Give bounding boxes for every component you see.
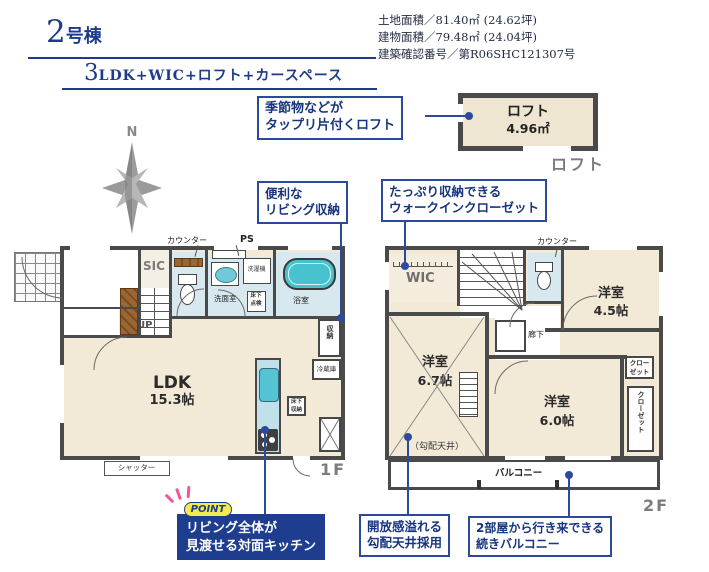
f1-sink-icon: [215, 267, 237, 283]
callout-living-line2: リビング収納: [265, 202, 340, 218]
window: [385, 262, 389, 290]
f2-room67-area: 6.7帖: [403, 374, 467, 388]
connector-kitchen: [264, 430, 266, 515]
f2-room60-label: 洋室: [527, 396, 587, 411]
f1-fridge-label: 冷蔵庫: [314, 366, 339, 373]
f1-washroom-label: 洗面室: [214, 295, 237, 304]
loft-room: ロフト 4.96㎡: [458, 93, 598, 151]
f2-hall-label: 廊下: [528, 330, 544, 339]
connector-ceiling: [407, 440, 409, 515]
floorplan-flyer: 2号棟 3LDK+WIC+ロフト+カースペース 土地面積／81.40㎡ (24.…: [0, 0, 709, 572]
callout-wic-line2: ウォークインクローゼット: [389, 200, 539, 216]
point-line2: 見渡せる対面キッチン: [186, 538, 316, 556]
f2-counter-label: カウンター: [537, 237, 577, 246]
wall-segment: [620, 355, 624, 456]
callout-loft-line2: タップリ片付くロフト: [265, 118, 395, 135]
f2-balcony: バルコニー: [388, 460, 660, 490]
connector-ceiling-dot: [404, 433, 412, 441]
x-mark-icon: [321, 419, 339, 450]
building-number: 2: [46, 14, 66, 50]
f1-washing-machine-label: 洗濯機: [244, 267, 269, 274]
f1-bathroom-label: 浴室: [293, 296, 309, 305]
f1-ldk-label: LDK: [142, 374, 202, 394]
f2-room45-area: 4.5帖: [581, 304, 641, 318]
f2-closet-top: クロー ゼット: [625, 356, 654, 379]
f1-hatch-label1: 床下: [248, 293, 264, 299]
callout-loft-line1: 季節物などが: [265, 101, 395, 118]
f1-hatch-label2: 点検: [248, 301, 264, 307]
f1-underfloor-storage: 床下 収納: [287, 396, 306, 416]
window: [288, 246, 332, 250]
f1-toilet-counter: [174, 258, 203, 267]
f1-uf-label2: 収納: [289, 407, 304, 413]
window: [589, 246, 637, 250]
entrance-porch-tiles: [14, 252, 66, 302]
f1-toilet-bowl-icon: [180, 284, 195, 305]
connector-living-storage: [340, 220, 342, 316]
connector-living-storage-dot: [337, 314, 345, 322]
floor2-plan: WIC DN 廊下 洋室 4.5帖 洋室 6.7帖 （勾配天井） 洋室 6.0帖: [385, 246, 663, 460]
f2-room45-label: 洋室: [581, 287, 641, 302]
land-area: 土地面積／81.40㎡ (24.62坪): [378, 12, 575, 29]
f1-kitchen-sink-icon: [259, 368, 279, 402]
callout-loft: 季節物などが タップリ片付くロフト: [257, 96, 403, 140]
f1-shoe-cabinet: [120, 288, 138, 335]
compass-north-label: N: [100, 126, 164, 141]
wall-segment: [64, 335, 172, 338]
point-panel: リビング全体が 見渡せる対面キッチン: [177, 514, 325, 560]
building-title: 2号棟: [46, 14, 102, 50]
floor1-plan: SIC UP 洗濯機 洗面室 床下 点検: [60, 246, 345, 460]
f2-caption: 2F: [643, 496, 669, 515]
f2-closet-side: クローゼット: [627, 386, 654, 452]
title-rule-top: [28, 57, 376, 59]
f1-caption: 1F: [320, 460, 346, 479]
f1-x-closet: [319, 417, 341, 452]
f1-stairs-center-line: [154, 288, 155, 335]
plan-number: 3: [84, 60, 99, 86]
f2-hall-closet: [495, 320, 526, 352]
f2-room60-area: 6.0帖: [525, 414, 589, 428]
point-badge: POINT: [184, 502, 232, 517]
callout-wic: たっぷり収納できる ウォークインクローゼット: [381, 179, 547, 222]
f1-sic-label: SIC: [143, 260, 165, 274]
f1-washing-machine: 洗濯機: [243, 258, 271, 284]
plan-rooms: LDK+WIC+ロフト+カースペース: [99, 68, 343, 84]
window: [70, 246, 110, 250]
callout-ceiling-line2: 勾配天井採用: [367, 535, 442, 551]
connector-balcony: [568, 478, 570, 517]
property-info: 土地面積／81.40㎡ (24.62坪) 建物面積／79.48㎡ (24.04坪…: [378, 12, 575, 63]
building-area: 建物面積／79.48㎡ (24.04坪): [378, 29, 575, 46]
callout-balcony-line2: 続きバルコニー: [476, 537, 604, 553]
wall-segment: [485, 312, 489, 456]
wall-segment: [545, 328, 659, 332]
f2-loft-ladder: [459, 372, 478, 417]
wall-segment: [526, 301, 564, 304]
callout-wic-line1: たっぷり収納できる: [389, 184, 539, 200]
f2-closet-top-label2: ゼット: [627, 369, 652, 376]
callout-ceiling-line1: 開放感溢れる: [367, 519, 442, 535]
point-line1: リビング全体が: [186, 520, 316, 538]
f2-sloped-ceiling-label: （勾配天井）: [410, 442, 464, 452]
window: [659, 272, 663, 316]
wall-segment: [489, 355, 627, 359]
f1-pipe-space: [212, 250, 246, 259]
window: [60, 365, 64, 423]
f1-counter-label: カウンター: [167, 236, 207, 245]
f2-closet-side-label: クローゼット: [637, 391, 645, 433]
wall-segment: [169, 316, 341, 319]
f1-shutter: シャッター: [104, 461, 170, 476]
f2-stairs-down: [460, 250, 523, 306]
compass-rose-icon: [100, 140, 164, 236]
f1-fridge-space: 冷蔵庫: [312, 359, 341, 380]
f1-storage-label: 収納: [326, 325, 334, 339]
f1-ps-label: PS: [240, 235, 254, 246]
f1-bathtub-icon: [283, 258, 336, 290]
f1-burner: [269, 437, 275, 443]
f2-wic-label: WIC: [406, 272, 435, 287]
connector-wic-dot: [401, 262, 409, 270]
f2-closet-top-label1: クロー: [627, 360, 652, 367]
wall-segment: [561, 250, 564, 330]
callout-balcony-line1: 2部屋から行き来できる: [476, 521, 604, 537]
f1-uf-label1: 床下: [289, 399, 304, 405]
wall-segment: [64, 307, 138, 309]
f2-toilet-bowl-icon: [537, 271, 551, 290]
balcony-divider-tick: [555, 480, 559, 489]
compass: N: [100, 126, 164, 238]
connector-loft: [425, 115, 469, 117]
title-rule-bottom: [62, 88, 377, 90]
callout-living-storage: 便利な リビング収納: [257, 181, 348, 224]
loft-room-area: 4.96㎡: [463, 122, 593, 136]
connector-kitchen-dot: [261, 426, 269, 434]
plan-summary: 3LDK+WIC+ロフト+カースペース: [84, 60, 343, 86]
f2-balcony-label: バルコニー: [495, 469, 542, 480]
loft-room-name: ロフト: [463, 104, 593, 120]
f1-underfloor-hatch: 床下 点検: [247, 291, 266, 312]
f2-room67-label: 洋室: [405, 356, 465, 371]
window: [140, 456, 228, 460]
f1-hallway-room: [64, 309, 119, 335]
permit-number: 建築確認番号／第R06SHC121307号: [378, 46, 575, 63]
connector-wic: [404, 220, 406, 264]
connector-loft-dot: [465, 112, 473, 120]
connector-balcony-dot: [565, 471, 573, 479]
loft-caption: ロフト: [551, 151, 605, 175]
door-opening: [293, 456, 310, 460]
f1-living-storage-closet: 収納: [318, 319, 341, 357]
f1-ldk-area: 15.3帖: [140, 394, 204, 409]
building-suffix: 号棟: [66, 26, 102, 47]
balcony-divider-tick: [477, 480, 481, 489]
callout-ceiling: 開放感溢れる 勾配天井採用: [359, 514, 450, 557]
f1-shutter-label: シャッター: [105, 464, 168, 473]
callout-living-line1: 便利な: [265, 186, 340, 202]
wall-segment: [138, 250, 141, 335]
f1-bathtub-inner: [288, 263, 331, 285]
wall-segment: [389, 312, 489, 316]
callout-balcony: 2部屋から行き来できる 続きバルコニー: [468, 516, 612, 557]
